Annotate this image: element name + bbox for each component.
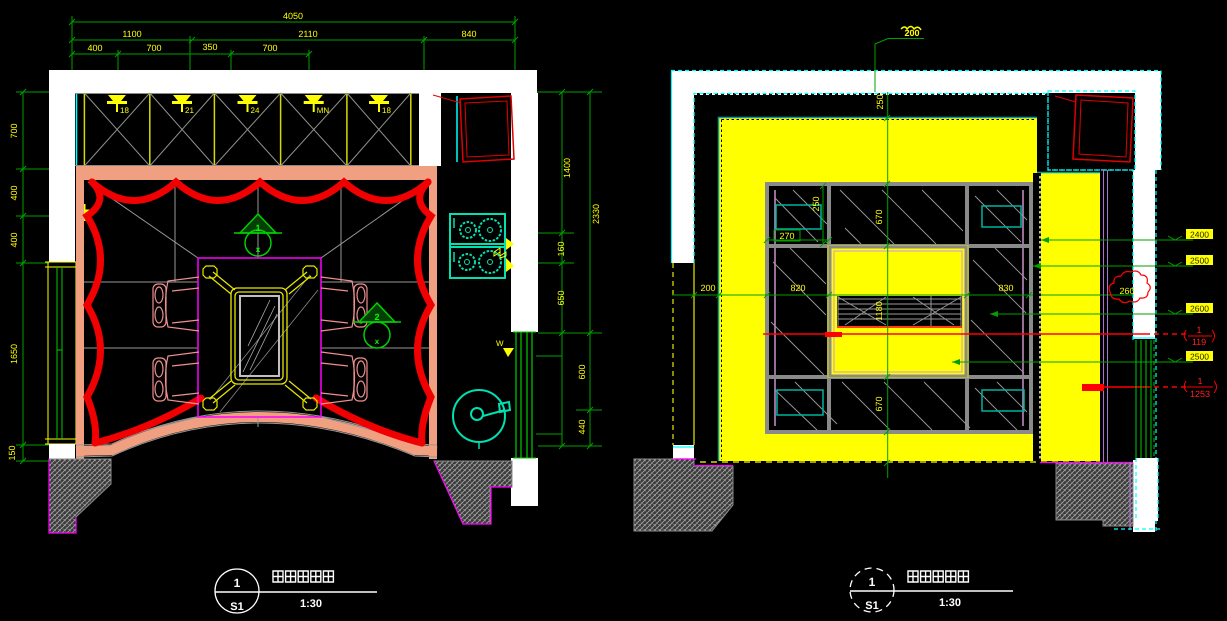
- svg-text:1: 1: [1196, 325, 1201, 335]
- svg-text:400: 400: [9, 232, 19, 247]
- svg-text:1650: 1650: [9, 344, 19, 364]
- svg-text:2: 2: [374, 312, 379, 322]
- svg-text:840: 840: [461, 29, 476, 39]
- svg-text:250: 250: [875, 94, 885, 109]
- svg-text:24: 24: [251, 106, 260, 115]
- svg-text:1253: 1253: [1190, 389, 1210, 399]
- svg-text:2600: 2600: [1190, 304, 1209, 314]
- svg-text:700: 700: [262, 43, 277, 53]
- svg-text:700: 700: [9, 123, 19, 138]
- svg-text:2500: 2500: [1190, 256, 1209, 266]
- svg-text:160: 160: [556, 241, 566, 256]
- svg-text:400: 400: [87, 43, 102, 53]
- svg-text:1: 1: [255, 223, 260, 233]
- svg-text:2110: 2110: [298, 29, 317, 39]
- svg-text:820: 820: [790, 283, 805, 293]
- svg-text:400: 400: [9, 185, 19, 200]
- svg-text:150: 150: [7, 445, 17, 460]
- svg-text:4050: 4050: [283, 11, 303, 21]
- svg-text:1:30: 1:30: [939, 597, 961, 609]
- svg-text:270: 270: [779, 231, 794, 241]
- svg-text:1400: 1400: [562, 158, 572, 178]
- svg-text:650: 650: [556, 290, 566, 305]
- svg-text:700: 700: [146, 43, 161, 53]
- svg-text:1100: 1100: [122, 29, 141, 39]
- svg-text:S1: S1: [865, 600, 878, 612]
- svg-text:2500: 2500: [1190, 352, 1209, 362]
- svg-text:x: x: [256, 245, 261, 254]
- svg-text:x: x: [375, 337, 380, 346]
- svg-text:350: 350: [202, 42, 217, 52]
- svg-text:670: 670: [874, 209, 884, 224]
- svg-text:440: 440: [577, 419, 587, 434]
- svg-text:S1: S1: [230, 601, 243, 613]
- svg-text:260: 260: [1119, 286, 1134, 296]
- svg-text:MN: MN: [317, 106, 330, 115]
- svg-text:250: 250: [811, 196, 821, 211]
- svg-text:119: 119: [1192, 337, 1206, 347]
- svg-text:18: 18: [382, 106, 391, 115]
- svg-text:2330: 2330: [591, 204, 601, 224]
- svg-text:600: 600: [577, 364, 587, 379]
- svg-text:1:30: 1:30: [300, 598, 322, 610]
- svg-text:2400: 2400: [1190, 230, 1209, 240]
- svg-text:1: 1: [869, 575, 876, 589]
- svg-text:670: 670: [874, 396, 884, 411]
- svg-text:21: 21: [185, 106, 194, 115]
- svg-text:1180: 1180: [874, 301, 884, 320]
- svg-text:1: 1: [1197, 376, 1202, 386]
- svg-text:1: 1: [234, 576, 241, 590]
- svg-text:18: 18: [120, 106, 129, 115]
- svg-text:W: W: [496, 339, 504, 348]
- svg-text:830: 830: [998, 283, 1013, 293]
- svg-text:200: 200: [700, 283, 715, 293]
